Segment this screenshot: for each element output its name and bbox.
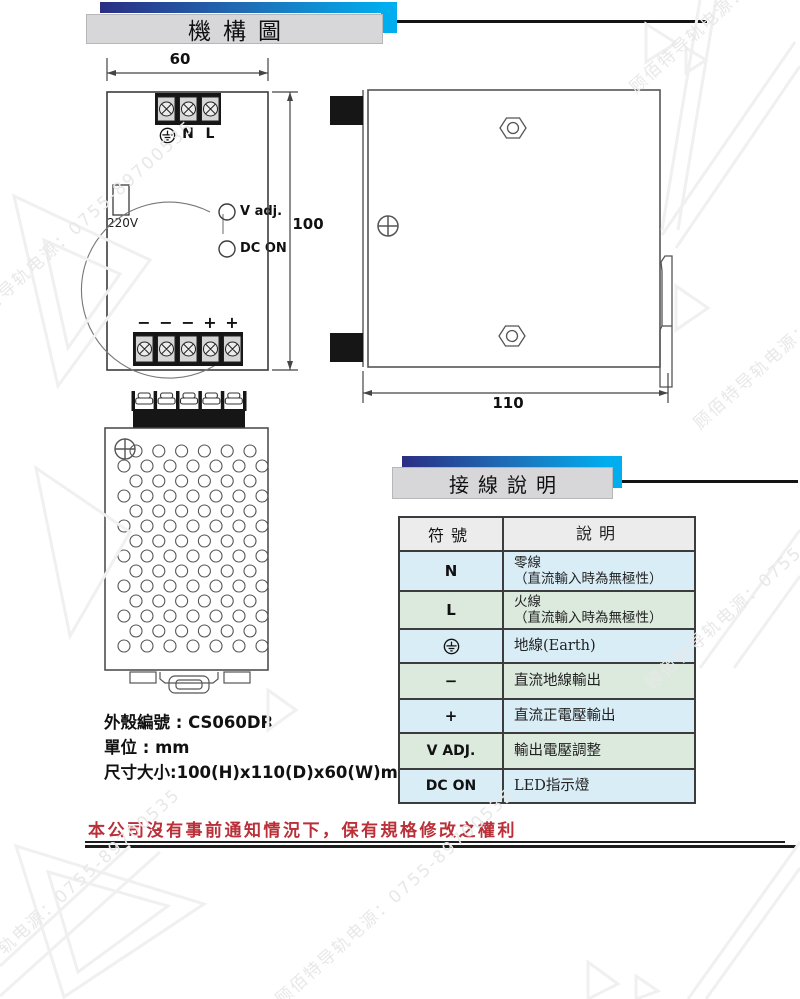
screw-icon	[378, 216, 398, 236]
table-row: N 零線 （直流輸入時為無極性）	[400, 550, 694, 590]
symbol-cell	[400, 630, 504, 662]
desc-line: （直流輸入時為無極性）	[514, 610, 694, 626]
bottom-feet	[130, 672, 250, 693]
banner-gradient-bar	[402, 456, 608, 467]
desc-line: 火線	[514, 594, 694, 610]
desc-line: 地線(Earth)	[514, 638, 694, 654]
front-bottom-terminal-block	[133, 332, 243, 366]
bottom-view-drawing	[100, 385, 280, 700]
table-row: L 火線 （直流輸入時為無極性）	[400, 590, 694, 628]
front-top-terminal-block	[155, 93, 221, 125]
mechanism-banner: 機構圖	[86, 14, 383, 44]
desc-cell: LED指示燈	[504, 770, 694, 802]
desc-cell: 直流正電壓輸出	[504, 700, 694, 732]
side-terminal-top	[330, 96, 363, 125]
mechanism-banner-title: 機構圖	[176, 12, 293, 46]
bottom-terminal-block	[132, 391, 247, 428]
case-number: 外殼編號 : CS060DR	[104, 710, 415, 735]
footer-rule-thick	[85, 845, 797, 848]
earth-icon	[159, 127, 176, 144]
footer-rule-thin	[85, 841, 785, 843]
symbol-cell: L	[400, 592, 504, 628]
watermark-text: 顾佰特导轨电源：0755-89700535	[626, 0, 800, 98]
symbol-cell: DC ON	[400, 770, 504, 802]
drawing-notes: 外殼編號 : CS060DR 單位 : mm 尺寸大小:100(H)x110(D…	[104, 710, 415, 785]
desc-line: LED指示燈	[514, 778, 694, 794]
watermark-text: 顾佰特导轨电源：0755-89700535	[690, 209, 800, 434]
desc-line: （直流輸入時為無極性）	[514, 571, 694, 587]
vadj-pot-icon	[219, 204, 235, 220]
wiring-table: 符號 說明 N 零線 （直流輸入時為無極性） L 火線 （直流輸入時為無極性）	[398, 516, 696, 804]
front-view-drawing	[95, 48, 310, 383]
desc-line: 輸出電壓調整	[514, 743, 694, 759]
datasheet-page: 機構圖	[0, 0, 800, 999]
desc-cell: 直流地線輸出	[504, 664, 694, 698]
symbol-cell: N	[400, 552, 504, 590]
table-row: 地線(Earth)	[400, 628, 694, 662]
banner-rule	[397, 20, 707, 23]
hex-nut-icon	[499, 118, 526, 346]
vent-holes	[118, 445, 268, 652]
desc-line: 零線	[514, 555, 694, 571]
table-header-row: 符號 說明	[400, 518, 694, 550]
side-terminal-bottom	[330, 333, 363, 362]
table-row: + 直流正電壓輸出	[400, 698, 694, 732]
side-view-drawing	[325, 85, 685, 420]
desc-cell: 地線(Earth)	[504, 630, 694, 662]
size-note: 尺寸大小:100(H)x110(D)x60(W)mm	[104, 760, 415, 785]
desc-cell: 輸出電壓調整	[504, 734, 694, 768]
table-row: DC ON LED指示燈	[400, 768, 694, 802]
desc-line: 直流地線輸出	[514, 673, 694, 689]
symbol-cell: +	[400, 700, 504, 732]
symbol-cell: −	[400, 664, 504, 698]
earth-icon	[443, 638, 460, 655]
table-row: V ADJ. 輸出電壓調整	[400, 732, 694, 768]
wiring-banner: 接線說明	[392, 467, 613, 499]
input-switch	[113, 185, 129, 215]
dcon-led-icon	[219, 241, 235, 257]
col-header-description: 說明	[504, 518, 694, 550]
unit-note: 單位 : mm	[104, 735, 415, 760]
wiring-banner-title: 接線說明	[440, 469, 565, 498]
din-rail-clip	[660, 256, 672, 387]
desc-cell: 火線 （直流輸入時為無極性）	[504, 592, 694, 628]
table-row: − 直流地線輸出	[400, 662, 694, 698]
desc-cell: 零線 （直流輸入時為無極性）	[504, 552, 694, 590]
col-header-symbol: 符號	[400, 518, 504, 550]
disclaimer-text: 本公司沒有事前通知情況下，保有規格修改之權利	[88, 816, 517, 841]
banner-rule	[622, 480, 798, 483]
side-dimension-lines	[363, 371, 668, 403]
desc-line: 直流正電壓輸出	[514, 708, 694, 724]
symbol-cell: V ADJ.	[400, 734, 504, 768]
banner-cyan-block	[381, 2, 397, 33]
